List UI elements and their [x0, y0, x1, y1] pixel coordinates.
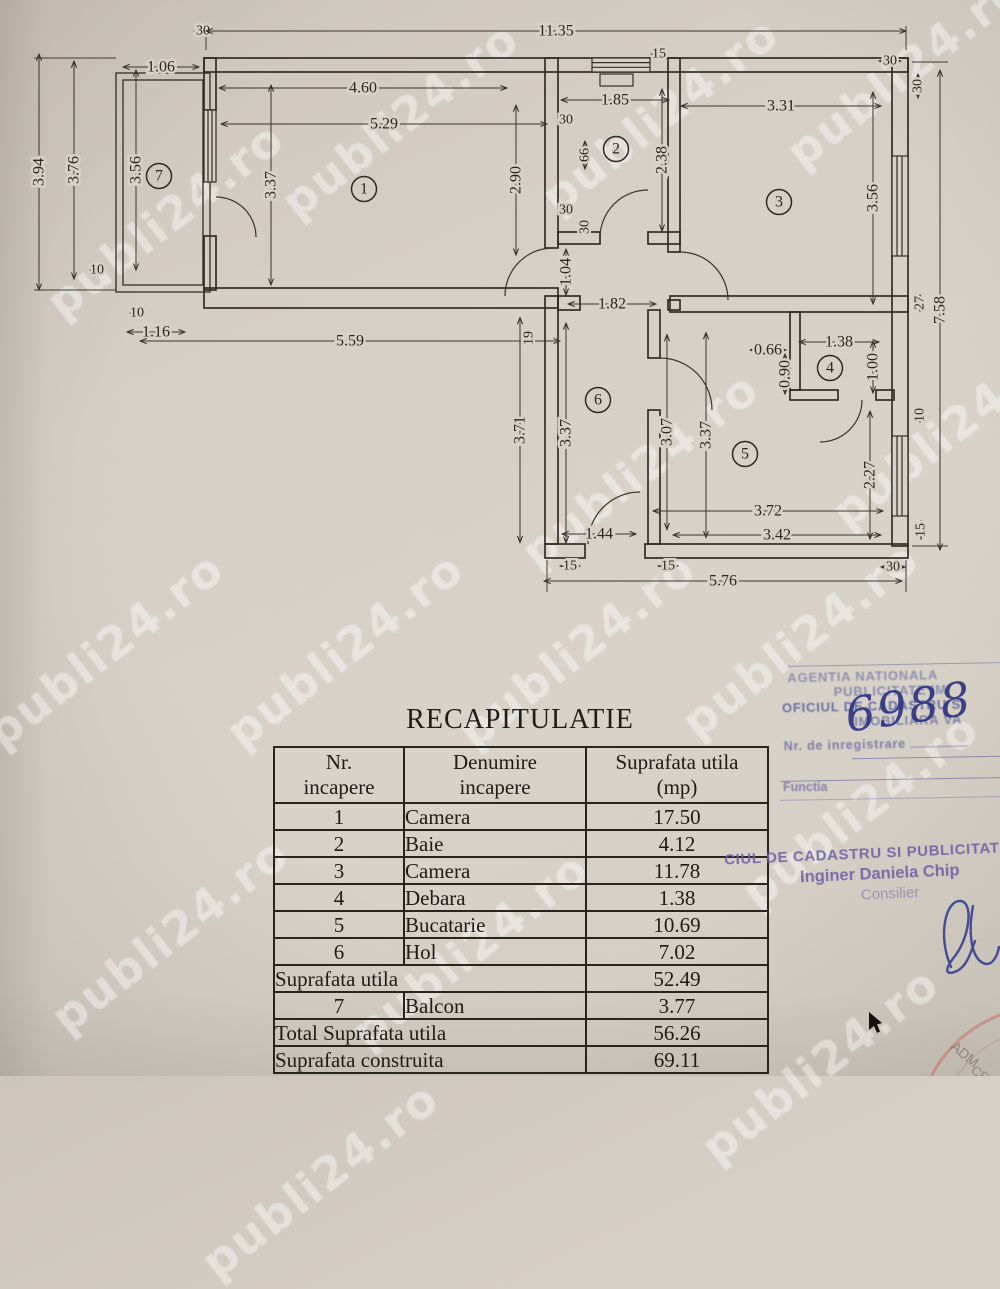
dimension-label: 27 — [913, 296, 928, 310]
room-nr-cell: 4 — [274, 884, 404, 911]
window-kitchen-icon — [892, 436, 908, 516]
extension-lines — [34, 26, 948, 592]
room-number: 3 — [775, 194, 783, 211]
room-nr-cell: 3 — [274, 857, 404, 884]
dimension-label: 4.60 — [349, 80, 377, 97]
dimension-label: 30 — [559, 113, 573, 128]
dimension-label: 15 — [914, 523, 929, 537]
room-number: 4 — [826, 360, 834, 377]
dimension-label: 30 — [886, 560, 900, 575]
window-room3-icon — [892, 156, 908, 256]
dimension-label: 10 — [913, 408, 928, 422]
door-balcony-icon — [216, 197, 256, 237]
table-row: 5Bucatarie10.69 — [274, 911, 768, 938]
door-room3-icon — [680, 252, 728, 300]
table-row: 1Camera17.50 — [274, 803, 768, 830]
table-row: Suprafata construita69.11 — [274, 1046, 768, 1073]
dimension-label: 30 — [559, 203, 573, 218]
dimension-label: 1.00 — [865, 353, 882, 381]
summary-label: Total Suprafata utila — [274, 1019, 586, 1046]
dimension-label: 3.94 — [31, 158, 48, 186]
dimension-label: 3.31 — [767, 98, 795, 115]
dimension-label: 30 — [883, 54, 897, 69]
window-top-icon — [592, 58, 650, 72]
room-name-cell: Camera — [404, 803, 586, 830]
walls — [116, 58, 908, 558]
table-row: Total Suprafata utila56.26 — [274, 1019, 768, 1046]
room-number: 6 — [594, 392, 602, 409]
room-area-cell: 7.02 — [586, 938, 768, 965]
room-nr-cell: 7 — [274, 992, 404, 1019]
dimension-label: 3.07 — [659, 418, 676, 446]
room-number: 5 — [741, 446, 749, 463]
handwritten-signature — [944, 901, 999, 973]
door-kitchen-icon — [660, 358, 712, 410]
summary-label: Suprafata utila — [274, 965, 586, 992]
watermark-text: publi24.ro — [191, 1071, 450, 1289]
room-number: 7 — [155, 168, 163, 185]
room-nr-cell: 1 — [274, 803, 404, 830]
dimension-label: 7.58 — [932, 296, 949, 324]
table-row: 4Debara1.38 — [274, 884, 768, 911]
windows — [204, 58, 908, 516]
dimension-label: 1.16 — [142, 324, 170, 341]
dimension-label: 15 — [661, 559, 675, 574]
dimension-label: 3.56 — [128, 156, 145, 184]
room-area-cell: 3.77 — [586, 992, 768, 1019]
stamp-rule — [780, 796, 1000, 801]
dimension-label: 3.42 — [763, 527, 791, 544]
dimension-label: 1.85 — [601, 92, 629, 109]
table-row: 7Balcon3.77 — [274, 992, 768, 1019]
room-name-cell: Baie — [404, 830, 586, 857]
dimension-label: 1.04 — [558, 258, 575, 286]
dimension-label: 19 — [522, 331, 537, 345]
dimension-label: 0.90 — [777, 360, 794, 388]
dimension-label: 5.59 — [336, 333, 364, 350]
dimension-label: 5.76 — [709, 573, 737, 590]
floor-plan-drawing: 3011.351530301.063.943.763.564.605.293.3… — [0, 0, 1000, 620]
svg-text:CE: CE — [968, 1062, 992, 1076]
watermark-text: publi24.ro — [41, 826, 300, 1045]
room-nr-cell: 5 — [274, 911, 404, 938]
stamp-rule — [852, 756, 1000, 760]
dimension-label: 10 — [90, 263, 104, 278]
recap-title: RECAPITULATIE — [270, 704, 770, 736]
room-name-cell: Camera — [404, 857, 586, 884]
door-arcs — [216, 190, 862, 544]
dimension-label: 1.82 — [598, 296, 626, 313]
dimension-label: 30 — [578, 220, 593, 234]
dimension-label: 2.38 — [654, 146, 671, 174]
dimension-label: 3.56 — [865, 184, 882, 212]
room-name-cell: Debara — [404, 884, 586, 911]
dimension-label: 0.66 — [754, 342, 782, 359]
recap-header-row: Nr.incapere Denumireincapere Suprafata u… — [274, 747, 768, 803]
col-header-nr: Nr.incapere — [274, 747, 404, 803]
dimension-label: 5.29 — [370, 116, 398, 133]
dimension-label: 2.90 — [508, 166, 525, 194]
table-row: 3Camera11.78 — [274, 857, 768, 884]
col-header-suprafata: Suprafata utila(mp) — [586, 747, 768, 803]
cadastre-office-stamp: CIUL DE CADASTRU SI PUBLICITATE I Ingine… — [724, 838, 1000, 909]
room-name-cell: Balcon — [404, 992, 586, 1019]
dimension-label: 10 — [130, 306, 144, 321]
dimension-label: 30 — [911, 79, 926, 93]
functia-label: Functia — [783, 780, 827, 794]
room-nr-cell: 6 — [274, 938, 404, 965]
room-area-cell: 10.69 — [586, 911, 768, 938]
door-bathroom-icon — [600, 190, 648, 238]
col-header-denumire: Denumireincapere — [404, 747, 586, 803]
dimension-label: 3.37 — [558, 419, 575, 447]
door-debara-icon — [820, 400, 862, 442]
table-row: Suprafata utila52.49 — [274, 965, 768, 992]
dimension-label: 3.72 — [754, 503, 782, 520]
round-red-seal: ADM CE — [917, 1007, 1000, 1076]
table-row: 2Baie4.12 — [274, 830, 768, 857]
room-number: 1 — [360, 181, 368, 198]
scanned-floor-plan-page: { "watermark": {"text": "publi24.ro"}, "… — [0, 0, 1000, 1076]
summary-area-value: 69.11 — [586, 1046, 768, 1073]
summary-area-value: 52.49 — [586, 965, 768, 992]
dimension-label: 15 — [563, 559, 577, 574]
mouse-cursor — [869, 1012, 882, 1033]
room-name-cell: Hol — [404, 938, 586, 965]
dimension-label: 3.37 — [698, 421, 715, 449]
room-name-cell: Bucatarie — [404, 911, 586, 938]
room-nr-cell: 2 — [274, 830, 404, 857]
summary-label: Suprafata construita — [274, 1046, 586, 1073]
dimension-label: 15 — [652, 47, 666, 62]
dimension-label: 1.06 — [147, 59, 175, 76]
dimension-label: 3.76 — [66, 156, 83, 184]
window-balcony-icon — [204, 110, 216, 182]
dimension-label: 66 — [578, 148, 593, 162]
room-area-cell: 17.50 — [586, 803, 768, 830]
dimension-label: 11.35 — [538, 23, 573, 40]
recap-table: Nr.incapere Denumireincapere Suprafata u… — [273, 746, 769, 1074]
dimension-label: 2.27 — [862, 461, 879, 489]
dimension-label: 3.71 — [512, 416, 529, 444]
dimension-label: 1.38 — [825, 334, 853, 351]
room-number: 2 — [612, 141, 620, 158]
summary-area-value: 56.26 — [586, 1019, 768, 1046]
table-row: 6Hol7.02 — [274, 938, 768, 965]
dimension-label: 3.37 — [263, 171, 280, 199]
dimension-label: 1.44 — [585, 526, 613, 543]
svg-text:ADM: ADM — [948, 1038, 982, 1070]
